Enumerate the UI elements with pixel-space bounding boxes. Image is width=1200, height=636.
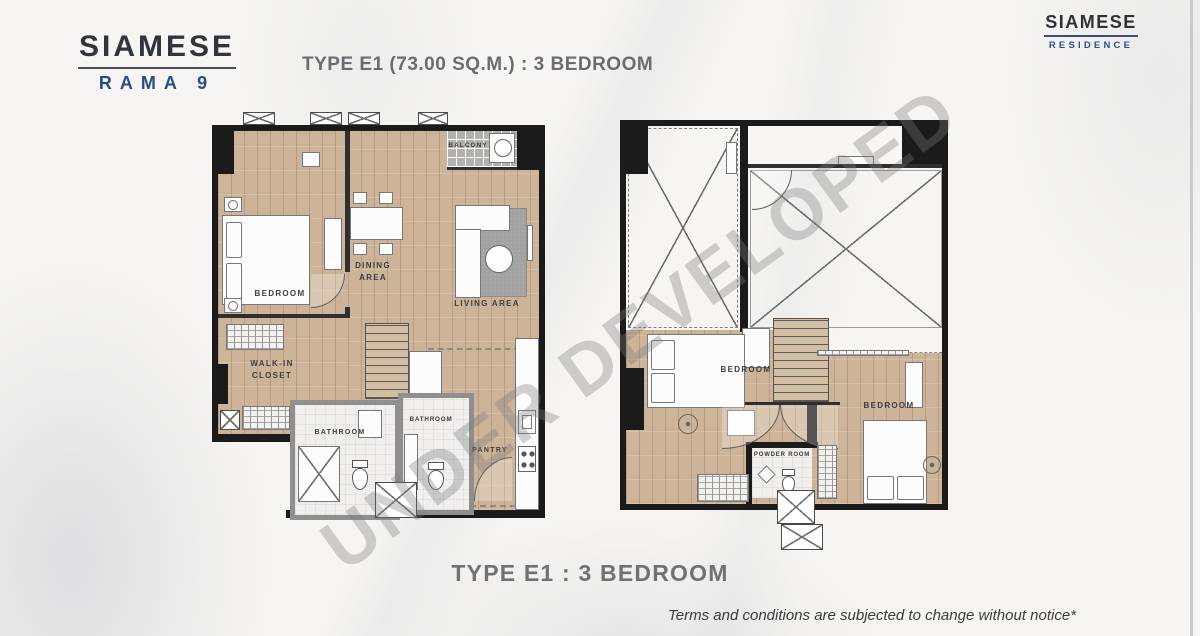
wardrobe [226, 324, 284, 350]
room-label-bathroom-a: BATHROOM [300, 428, 380, 438]
pillow [226, 222, 242, 258]
wall [345, 131, 350, 272]
closet-strip [817, 350, 909, 356]
shaft [781, 524, 823, 550]
window-icon [243, 112, 275, 125]
wall [942, 120, 948, 504]
brochure-page: SIAMESE RAMA 9 TYPE E1 (73.00 SQ.M.) : 3… [0, 0, 1200, 636]
entry-threshold [470, 505, 516, 507]
logo-division-text: RESIDENCE [1043, 40, 1139, 51]
shaft [777, 490, 815, 524]
washer-drum-icon [494, 139, 512, 157]
room-label-balcony: BALCONY [448, 141, 488, 150]
window-icon [348, 112, 380, 125]
logo-underline [78, 67, 236, 69]
pillow [867, 476, 894, 500]
room-label-bedroom-a: BEDROOM [716, 364, 776, 376]
column [620, 120, 648, 174]
page-edge-line [1190, 0, 1193, 636]
lamp-icon [228, 301, 238, 311]
ceiling-fan-icon [678, 414, 698, 434]
logo-siamese-residence: SIAMESE RESIDENCE [1043, 12, 1139, 51]
stairs [365, 323, 409, 399]
room-label-powder-room: POWDER ROOM [748, 451, 816, 460]
chair [379, 192, 393, 204]
sofa [455, 205, 510, 231]
ac-unit-icon [726, 142, 737, 174]
void-dashed-line [428, 348, 520, 350]
wall [212, 434, 296, 442]
window-icon [418, 112, 448, 125]
room-label-dining-area: DINING AREA [350, 260, 396, 283]
stair-landing [409, 351, 442, 399]
stairs [773, 318, 829, 402]
coffee-table [485, 245, 513, 273]
toilet [782, 469, 795, 476]
cabinet [742, 328, 770, 368]
pillow [897, 476, 924, 500]
sofa [455, 229, 481, 298]
column [212, 125, 234, 174]
logo-brand-text: SIAMESE [1043, 12, 1139, 33]
dining-table [350, 207, 403, 240]
pillow [226, 263, 242, 299]
toilet [352, 460, 368, 468]
dresser [324, 218, 342, 270]
plan-title: TYPE E1 (73.00 SQ.M.) : 3 BEDROOM [302, 54, 653, 76]
column [517, 125, 545, 170]
plan-caption: TYPE E1 : 3 BEDROOM [400, 560, 780, 587]
shaft [220, 410, 240, 430]
ceiling-fan-icon [923, 456, 941, 474]
shower [298, 446, 340, 502]
wall [212, 125, 545, 131]
logo-project-text: RAMA 9 [76, 73, 238, 94]
column [212, 364, 228, 404]
wardrobe [817, 445, 837, 499]
logo-underline [1044, 35, 1138, 37]
room-label-walk-in-closet: WALK-IN CLOSET [240, 358, 304, 381]
lamp-icon [228, 200, 238, 210]
chair [353, 243, 367, 255]
logo-brand-text: SIAMESE [76, 30, 238, 64]
wardrobe [697, 474, 749, 502]
room-label-living-area: LIVING AREA [452, 298, 522, 310]
tv-cabinet [302, 152, 320, 167]
chair [379, 243, 393, 255]
room-label-bedroom-b: BEDROOM [858, 400, 920, 412]
pillow [651, 373, 675, 403]
washing-machine-icon [489, 133, 515, 163]
logo-siamese-rama9: SIAMESE RAMA 9 [76, 30, 238, 94]
wardrobe [242, 406, 290, 430]
window-icon [310, 112, 342, 125]
chair [353, 192, 367, 204]
disclaimer: Terms and conditions are subjected to ch… [668, 607, 1076, 624]
wall [218, 314, 348, 318]
tv-console [527, 225, 533, 261]
room-label-bedroom: BEDROOM [248, 288, 312, 300]
balcony-wall [447, 167, 517, 170]
wall [539, 125, 545, 516]
